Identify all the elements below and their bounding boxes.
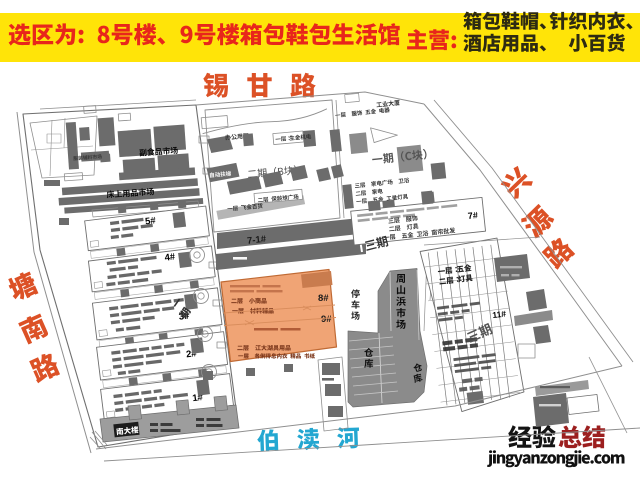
svg-text:11#: 11# — [492, 308, 507, 320]
svg-text:4#: 4# — [164, 251, 177, 263]
svg-text:8#: 8# — [318, 293, 329, 304]
svg-text:9#: 9# — [321, 314, 332, 325]
svg-text:7#: 7# — [467, 210, 478, 221]
svg-text:7-1#: 7-1# — [247, 234, 268, 247]
